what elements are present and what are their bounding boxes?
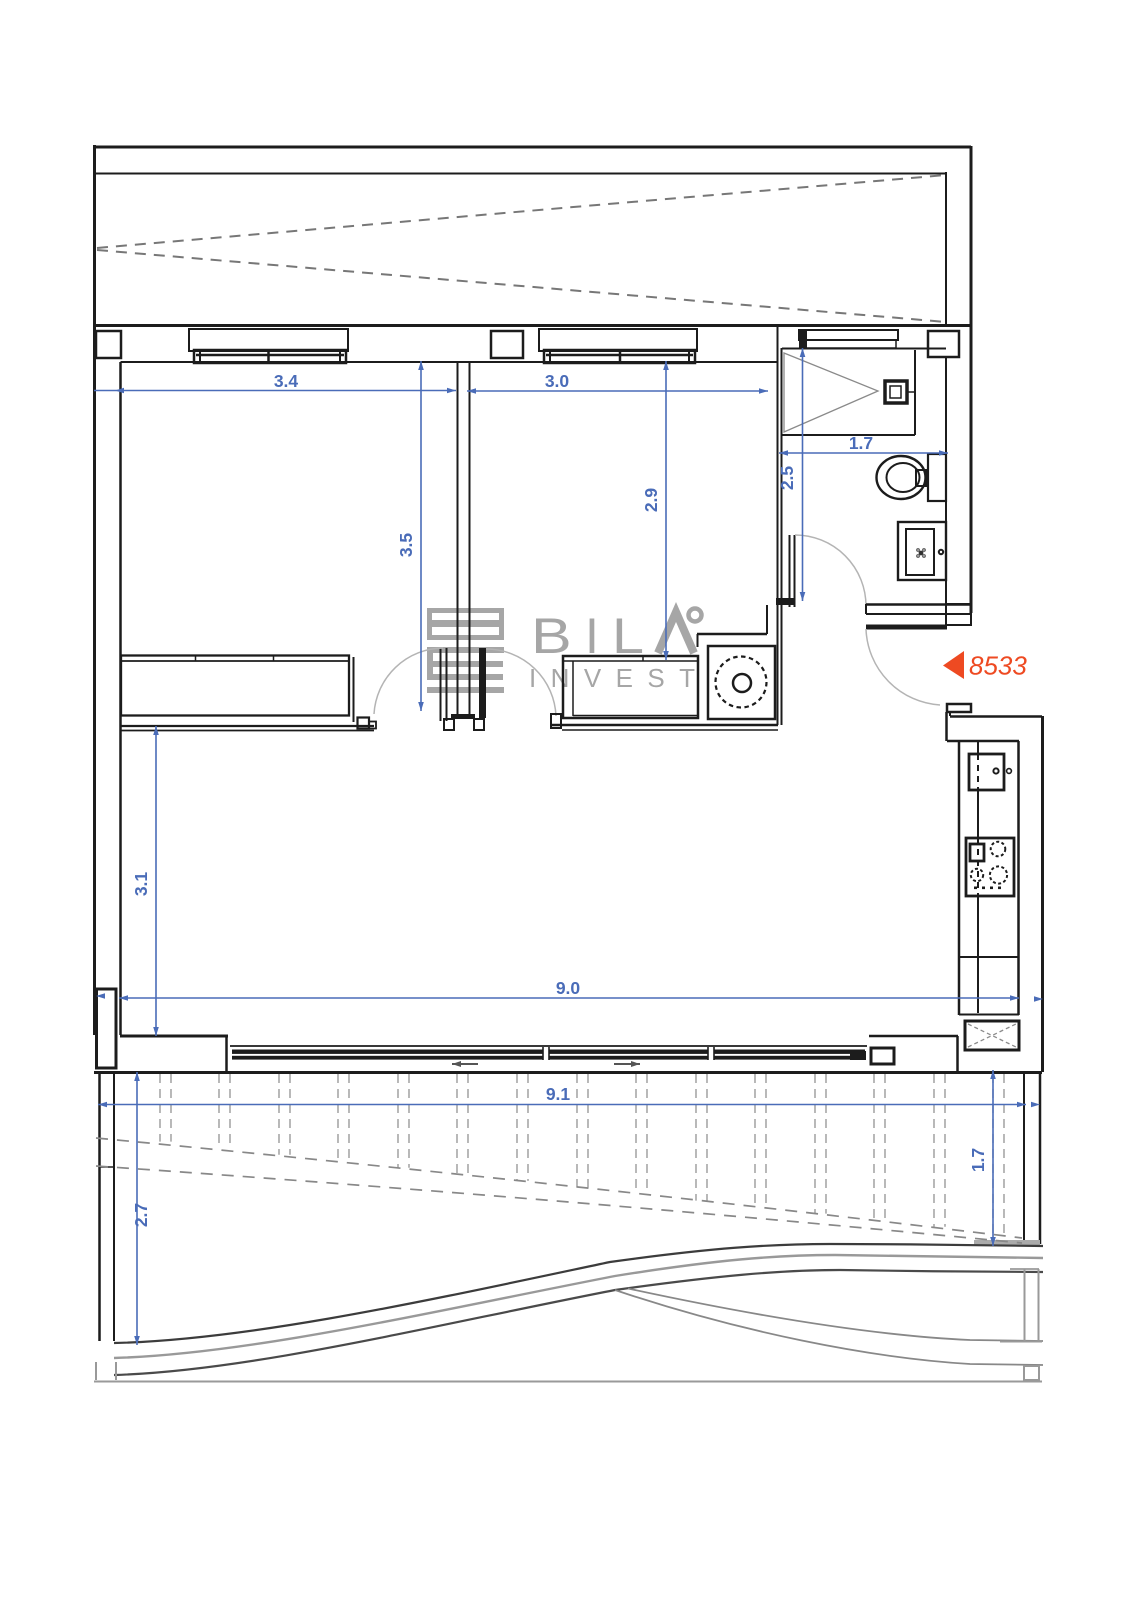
svg-text:3.0: 3.0 [545, 371, 570, 391]
svg-text:2.5: 2.5 [777, 466, 797, 491]
svg-text:3.1: 3.1 [131, 872, 151, 897]
svg-text:3.5: 3.5 [396, 533, 416, 558]
svg-text:2.9: 2.9 [641, 488, 661, 513]
svg-text:9.1: 9.1 [546, 1084, 571, 1104]
svg-text:8533: 8533 [969, 651, 1027, 681]
svg-text:1.7: 1.7 [968, 1148, 988, 1172]
svg-text:2.7: 2.7 [131, 1203, 151, 1227]
svg-text:1.7: 1.7 [849, 433, 873, 453]
svg-text:3.4: 3.4 [274, 371, 299, 391]
svg-text:9.0: 9.0 [556, 978, 581, 998]
